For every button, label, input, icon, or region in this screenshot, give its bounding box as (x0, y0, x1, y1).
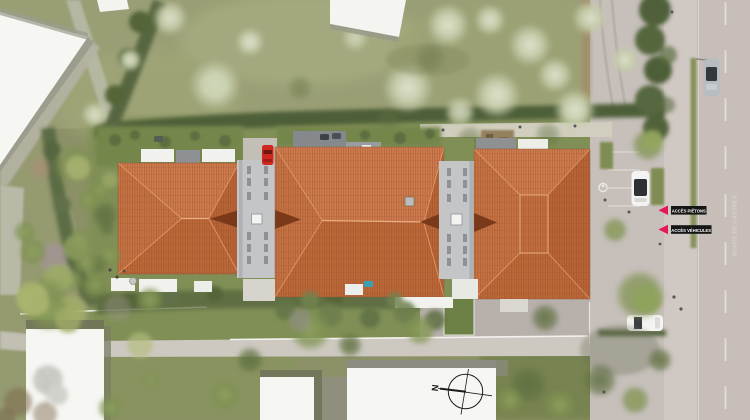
svg-text:N: N (430, 384, 441, 392)
svg-text:ACCÈS VÉHICULES: ACCÈS VÉHICULES (671, 228, 711, 233)
svg-text:ROUTE DE CASTRES: ROUTE DE CASTRES (733, 195, 739, 256)
svg-text:ACCÈS PIÉTONS: ACCÈS PIÉTONS (672, 209, 706, 214)
